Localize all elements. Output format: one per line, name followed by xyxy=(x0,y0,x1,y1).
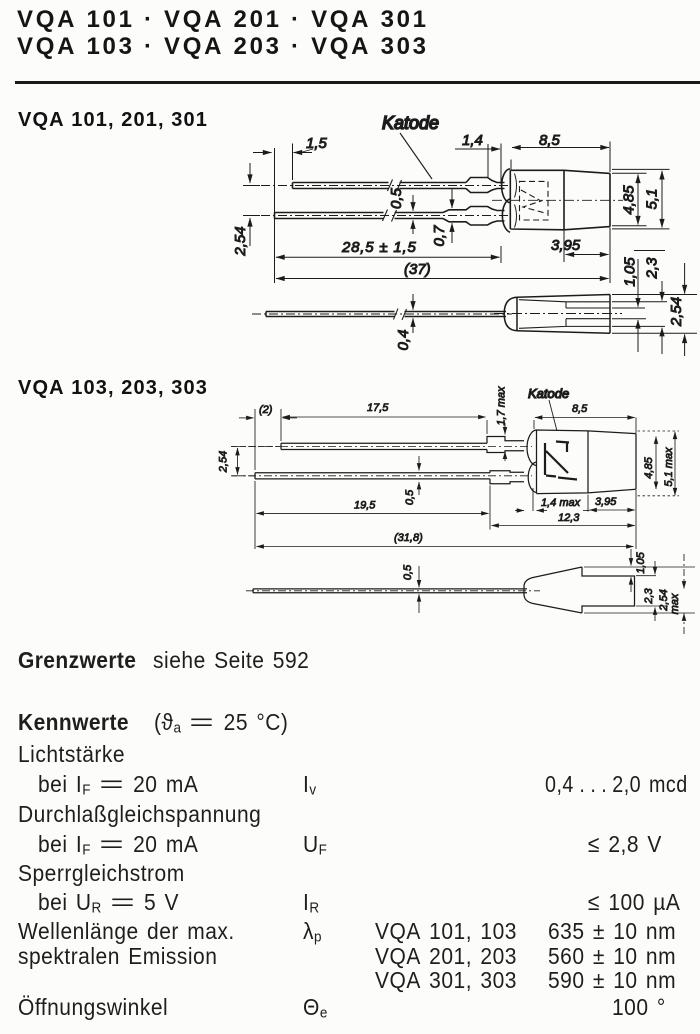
svg-text:1,05: 1,05 xyxy=(635,551,647,573)
svg-text:max: max xyxy=(669,593,681,614)
svg-text:17,5: 17,5 xyxy=(367,402,389,414)
svg-text:2,54: 2,54 xyxy=(668,297,685,327)
svg-text:8,5: 8,5 xyxy=(539,132,561,149)
svg-text:8,5: 8,5 xyxy=(572,403,588,415)
svg-text:3,95: 3,95 xyxy=(551,237,581,254)
svg-text:(37): (37) xyxy=(404,261,431,278)
svg-text:0,4: 0,4 xyxy=(395,330,412,351)
svg-text:2,54: 2,54 xyxy=(232,226,249,256)
svg-text:4,85: 4,85 xyxy=(621,185,638,215)
svg-text:3,95: 3,95 xyxy=(595,496,617,508)
svg-text:0,7: 0,7 xyxy=(431,225,448,247)
svg-text:0,5: 0,5 xyxy=(388,187,405,209)
svg-text:(2): (2) xyxy=(259,404,273,416)
svg-text:2,54: 2,54 xyxy=(218,451,230,473)
svg-text:1,5: 1,5 xyxy=(306,135,328,152)
svg-text:1,4 max: 1,4 max xyxy=(541,497,581,509)
svg-text:12,3: 12,3 xyxy=(558,512,580,524)
svg-text:(31,8): (31,8) xyxy=(394,532,423,544)
svg-text:1,7 max: 1,7 max xyxy=(496,386,508,426)
svg-text:28,5 ± 1,5: 28,5 ± 1,5 xyxy=(341,239,417,256)
svg-text:1,4: 1,4 xyxy=(462,132,483,149)
svg-text:0,5: 0,5 xyxy=(404,489,416,505)
svg-text:5,1: 5,1 xyxy=(644,189,661,210)
svg-text:0,5: 0,5 xyxy=(402,564,414,580)
svg-text:2,3: 2,3 xyxy=(643,587,655,604)
svg-text:1,05: 1,05 xyxy=(622,257,639,287)
svg-text:Katode: Katode xyxy=(382,113,439,133)
svg-text:4,85: 4,85 xyxy=(643,456,655,478)
svg-text:19,5: 19,5 xyxy=(354,500,376,512)
svg-text:2,3: 2,3 xyxy=(644,257,661,280)
svg-text:5,1 max: 5,1 max xyxy=(663,447,675,487)
svg-text:Katode: Katode xyxy=(528,386,569,401)
